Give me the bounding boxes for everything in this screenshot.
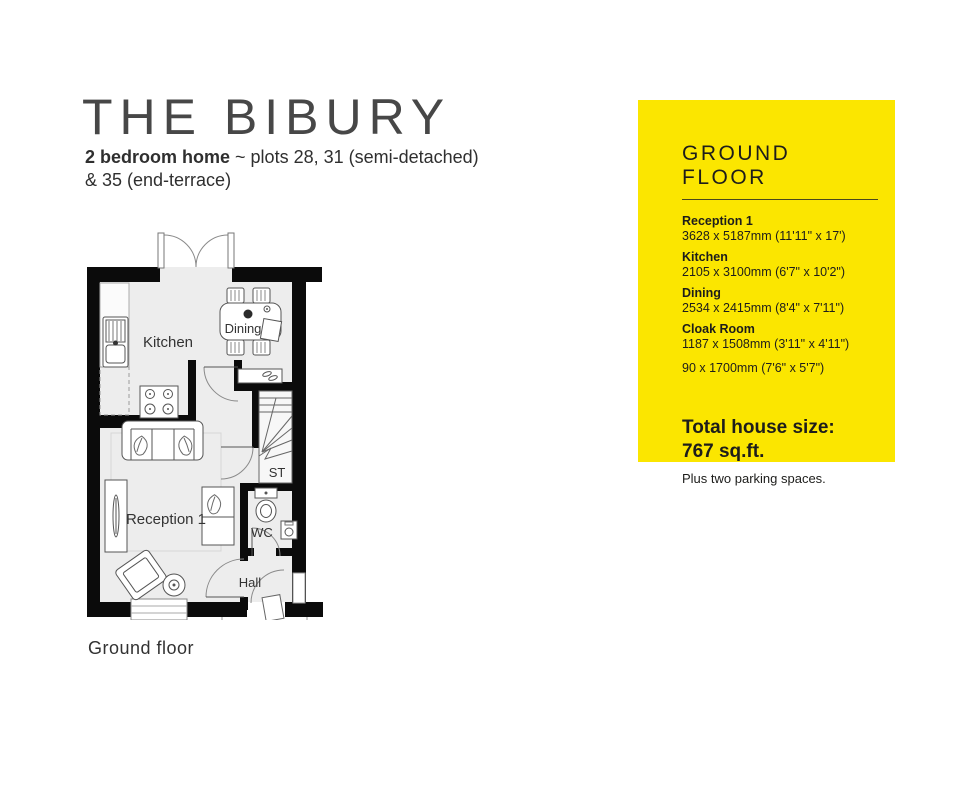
room-label-wc: WC xyxy=(251,525,273,540)
reception-window xyxy=(131,599,187,620)
side-table xyxy=(163,574,185,596)
porch-outline xyxy=(222,617,307,620)
subtitle-bold-text: 2 bedroom home xyxy=(85,147,230,167)
panel-divider xyxy=(682,199,878,200)
french-doors xyxy=(158,233,234,268)
total-value: 767 sq.ft. xyxy=(682,440,877,464)
room-label-kitchen: Kitchen xyxy=(143,334,193,351)
tv-unit xyxy=(105,480,127,552)
room-spec-extra: 90 x 1700mm (7'6" x 5'7") xyxy=(682,361,877,376)
placemat-icon xyxy=(260,319,281,342)
parking-note: Plus two parking spaces. xyxy=(682,471,877,486)
basin-icon xyxy=(281,521,297,539)
room-spec-name: Cloak Room xyxy=(682,322,877,337)
door-sidelight xyxy=(293,573,305,603)
room-label-hall: Hall xyxy=(239,575,262,590)
floor-plan: Kitchen Dining Reception 1 ST WC Hall xyxy=(85,228,330,620)
room-spec-dims: 1187 x 1508mm (3'11" x 4'11") xyxy=(682,337,877,352)
sideboard xyxy=(238,369,282,383)
room-spec-reception: Reception 1 3628 x 5187mm (11'11" x 17') xyxy=(682,214,877,244)
floorplan-caption: Ground floor xyxy=(88,638,194,659)
room-spec-dims: 2105 x 3100mm (6'7" x 10'2") xyxy=(682,265,877,280)
room-spec-name: Reception 1 xyxy=(682,214,877,229)
subtitle-plots-text: ~ plots 28, 31 (semi-detached) xyxy=(230,147,479,167)
total-label: Total house size: xyxy=(682,416,877,440)
kitchen-hob xyxy=(140,386,178,418)
subtitle-line2-text: & 35 (end-terrace) xyxy=(85,170,231,190)
toilet-icon xyxy=(255,488,277,522)
page-subtitle: 2 bedroom home ~ plots 28, 31 (semi-deta… xyxy=(85,146,505,192)
room-spec-dims: 2534 x 2415mm (8'4" x 7'11") xyxy=(682,301,877,316)
brochure-page: THE BIBURY 2 bedroom home ~ plots 28, 31… xyxy=(0,0,980,799)
room-label-reception: Reception 1 xyxy=(126,511,206,528)
room-spec-dining: Dining 2534 x 2415mm (8'4" x 7'11") xyxy=(682,286,877,316)
plant-icon xyxy=(244,310,253,319)
sofa xyxy=(122,421,203,460)
page-title: THE BIBURY xyxy=(82,88,451,146)
room-spec-name: Dining xyxy=(682,286,877,301)
ground-floor-panel: GROUND FLOOR Reception 1 3628 x 5187mm (… xyxy=(638,100,895,462)
room-label-dining: Dining xyxy=(225,321,262,336)
room-spec-dims: 3628 x 5187mm (11'11" x 17') xyxy=(682,229,877,244)
room-spec-name: Kitchen xyxy=(682,250,877,265)
room-spec-cloakroom: Cloak Room 1187 x 1508mm (3'11" x 4'11") xyxy=(682,322,877,352)
room-label-storage: ST xyxy=(269,465,286,480)
chaise-seat xyxy=(202,487,234,545)
flower-icon xyxy=(264,306,270,312)
room-spec-kitchen: Kitchen 2105 x 3100mm (6'7" x 10'2") xyxy=(682,250,877,280)
panel-heading: GROUND FLOOR xyxy=(682,142,877,190)
room-spec-dims: 90 x 1700mm (7'6" x 5'7") xyxy=(682,361,877,376)
kitchen-sink xyxy=(103,317,128,367)
total-house-size: Total house size: 767 sq.ft. xyxy=(682,416,877,464)
